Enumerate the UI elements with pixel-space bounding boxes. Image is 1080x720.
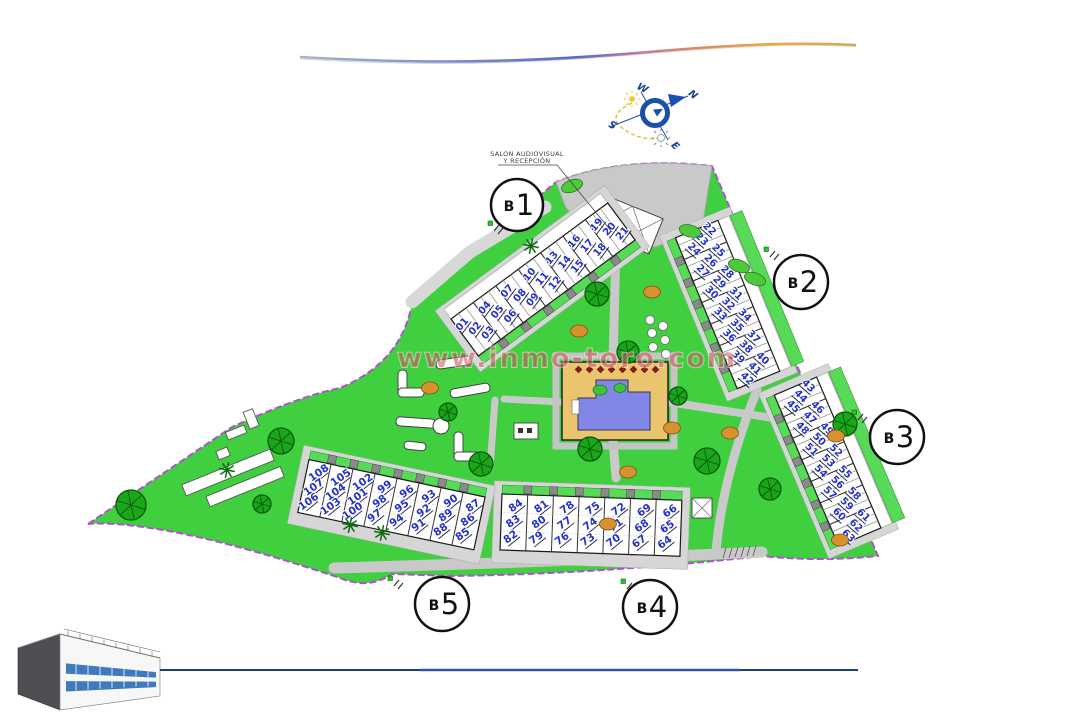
shrub [571, 325, 588, 337]
compass-label-s: S [606, 119, 618, 132]
porch [327, 455, 336, 464]
north-arrow-icon [668, 94, 686, 107]
badge-digit: 1 [516, 188, 534, 222]
watermark-text: www.inmo-toro.com [397, 343, 737, 374]
site-plan-svg: W N S E [0, 0, 1080, 720]
porch [575, 488, 583, 496]
pool-bush [614, 384, 626, 393]
badge-prefix: B [637, 601, 648, 617]
entrance-mark [388, 576, 403, 589]
site-plan-canvas: W N S E [0, 0, 1080, 720]
badge-digit: 4 [649, 590, 667, 624]
block-badge-b5: B5 [415, 577, 469, 631]
legend-box [514, 423, 538, 439]
shrub [664, 422, 681, 434]
porch [349, 459, 358, 468]
porch [393, 469, 402, 478]
compass-label-n: N [686, 88, 700, 102]
developer-logo [18, 629, 160, 710]
entrance-mark [764, 247, 779, 260]
tree [669, 387, 687, 405]
shrub [832, 534, 849, 546]
porch [627, 489, 635, 497]
tree [578, 437, 602, 461]
porch [415, 473, 424, 482]
shrub [644, 286, 661, 298]
tree [439, 403, 457, 421]
shrub [722, 427, 739, 439]
compass-label-e: E [668, 140, 681, 153]
shrub [828, 430, 845, 442]
badge-prefix: B [788, 276, 799, 292]
badge-digit: 5 [441, 587, 459, 621]
porch [601, 488, 609, 496]
tree [253, 495, 271, 513]
shrub [600, 518, 617, 530]
tree [585, 282, 609, 306]
badge-digit: 3 [896, 420, 914, 454]
tree [694, 448, 720, 474]
block-badge-b4: B4 [623, 580, 677, 634]
block-badge-b2: B2 [774, 255, 828, 309]
tree [116, 490, 146, 520]
pool-steps [572, 400, 579, 414]
tree [759, 478, 781, 500]
transformer-box [692, 498, 712, 518]
porch [652, 490, 660, 498]
porch [524, 486, 532, 494]
compass-rose: W N S E [606, 81, 699, 152]
reception-label-line2: Y RECEPCIÓN [503, 156, 551, 165]
tree [268, 428, 294, 454]
shrub [422, 382, 439, 394]
sun-icon-nw [624, 91, 640, 107]
tree [469, 452, 493, 476]
block-badge-b1: B1 [491, 179, 543, 231]
porch [459, 483, 468, 492]
porch [549, 487, 557, 495]
building-b4: 8483828180797877767574737271706968676665… [492, 481, 691, 570]
badge-prefix: B [429, 598, 440, 614]
badge-prefix: B [884, 431, 895, 447]
block-badge-b3: B3 [870, 410, 924, 464]
porch [371, 464, 380, 473]
pool-bush [593, 385, 607, 395]
shrub [620, 466, 637, 478]
badge-digit: 2 [800, 265, 818, 299]
badge-prefix: B [504, 199, 515, 215]
top-swoosh [300, 44, 856, 64]
porch [437, 478, 446, 487]
